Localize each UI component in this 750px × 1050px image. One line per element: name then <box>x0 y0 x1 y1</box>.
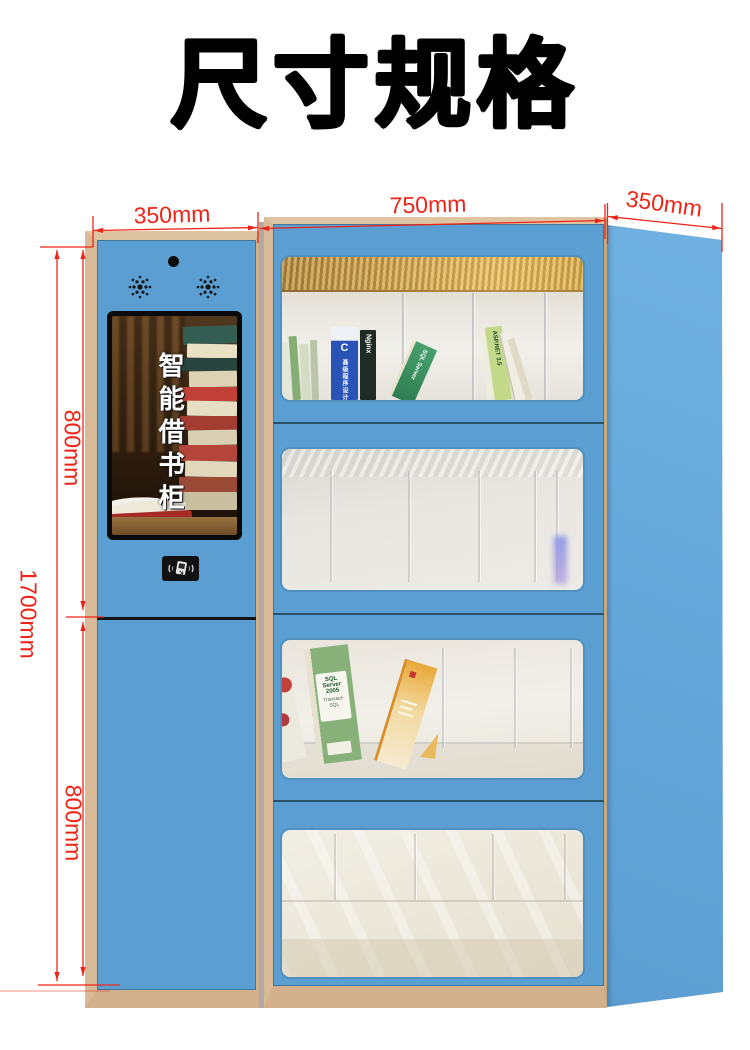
main-cabinet-front: C 高级程序设计 Nginx SQL Server ASP.NET 3.5 <box>273 224 604 986</box>
acrylic-shimmer <box>282 449 583 477</box>
book-sql2005-label: SQL Server 2005 <box>315 674 348 696</box>
book-sql-tilted: SQL Server <box>389 340 437 400</box>
book-c-primer: C 高级程序设计 <box>331 327 358 400</box>
shelf-floor <box>282 939 583 977</box>
book-spine <box>299 344 311 400</box>
swipe-card-icon <box>166 559 196 578</box>
main-cabinet: C 高级程序设计 Nginx SQL Server ASP.NET 3.5 <box>264 217 607 1008</box>
book-c-primer-series: 高级程序设计 <box>340 359 349 400</box>
kiosk-tower: 智能借书柜 <box>85 231 259 1008</box>
book-c-primer-label: C <box>331 341 358 355</box>
desk-graphic <box>112 517 237 535</box>
book-nginx-label: Nginx <box>365 334 372 353</box>
book-spine <box>310 340 319 400</box>
door-seam <box>273 422 604 424</box>
spec-sheet: 尺寸规格 <box>0 0 750 1050</box>
book-nginx: Nginx <box>360 330 376 400</box>
kiosk-lower-door <box>97 620 256 990</box>
dimension-label-upper-height: 800mm <box>59 410 86 487</box>
book-magazine <box>282 667 307 762</box>
door-seam <box>273 800 604 802</box>
speaker-left-icon <box>127 274 153 300</box>
wood-top-band <box>282 257 583 292</box>
dimension-label-cabinet-width: 750mm <box>389 191 466 220</box>
window-shelf-1: C 高级程序设计 Nginx SQL Server ASP.NET 3.5 <box>282 257 583 400</box>
kiosk-front-panel: 智能借书柜 <box>97 240 256 990</box>
screen-caption: 智能借书柜 <box>152 352 189 517</box>
card-reader <box>162 556 199 581</box>
window-shelf-4 <box>282 830 583 977</box>
cabinet-illustration: 智能借书柜 <box>0 0 750 1050</box>
book-sql-label: SQL Server <box>409 348 428 380</box>
book-sql2005-sub: Transact-SQL <box>318 694 350 710</box>
dimension-label-depth: 350mm <box>624 185 704 222</box>
dimension-label-lower-height: 800mm <box>60 785 87 862</box>
speaker-right-icon <box>195 274 221 300</box>
window-shelf-2 <box>282 449 583 590</box>
camera-icon <box>168 256 179 267</box>
cabinet-side-panel <box>607 225 723 1007</box>
screen-content: 智能借书柜 <box>112 316 237 535</box>
shelf-floor-line <box>282 900 583 902</box>
door-seam <box>273 613 604 615</box>
dimension-label-left-width: 350mm <box>133 201 210 230</box>
kiosk-screen: 智能借书柜 <box>107 311 242 540</box>
window-shelf-3: SQL Server 2005 Transact-SQL <box>282 640 583 778</box>
dimension-label-total-height: 1700mm <box>15 569 42 658</box>
indicator-light-glow <box>554 536 567 584</box>
